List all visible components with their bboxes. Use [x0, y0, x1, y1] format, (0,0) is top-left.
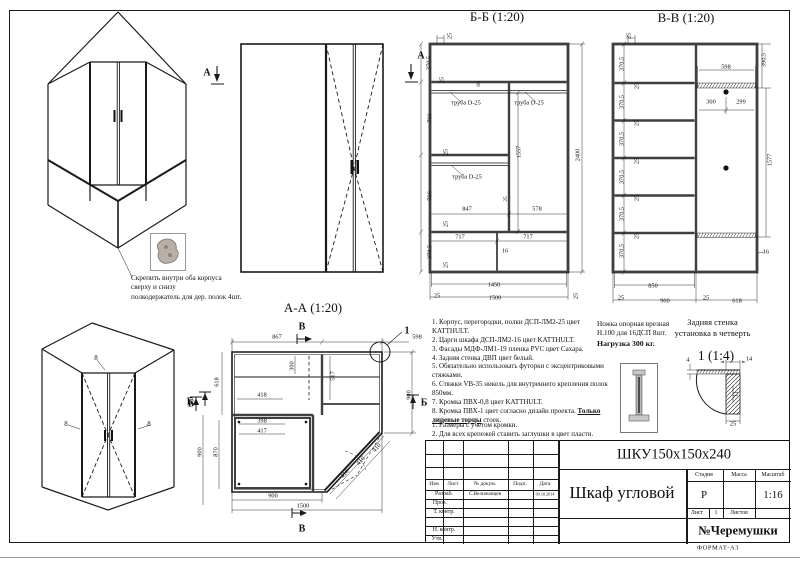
section-marker-b-right: Б	[421, 398, 428, 409]
dim: 60	[476, 81, 482, 86]
dim: 870	[213, 447, 220, 456]
dim: 717	[455, 234, 464, 241]
dim: 25	[443, 262, 450, 268]
dim: 370.5	[619, 57, 626, 71]
dim: 16	[763, 249, 769, 256]
tb-sheets-label: Листов	[730, 510, 748, 516]
tb-row-tkontr: Т. контр.	[433, 509, 454, 515]
project-number: №Черемушки	[698, 524, 778, 539]
tb-row-razrab: Разраб.	[435, 491, 453, 497]
plan-aa-view	[195, 312, 445, 537]
tb-col-list: Лист	[447, 481, 459, 487]
dim: 25	[447, 33, 454, 39]
section-marker-v-bottom: В	[299, 524, 306, 535]
section-marker-b-left: Б	[187, 397, 194, 408]
dim: 900	[268, 493, 277, 500]
tb-mass-label: Масса	[731, 472, 747, 478]
dim: 25	[634, 120, 641, 126]
dim: 517	[330, 371, 337, 380]
drawing-name: Шкаф угловой	[569, 483, 674, 503]
dim: 25	[439, 77, 446, 83]
notes-extra-list: 1. Размеры с учетом кромки. 2. Для всех …	[432, 421, 612, 439]
section-bb-title: Б-Б (1:20)	[470, 9, 524, 25]
section-bb-view	[415, 25, 595, 315]
note-item: 3. Фасады МДФ-ЛМ1-19 пленка PVC цвет Сах…	[432, 345, 612, 354]
dim: 1577	[767, 154, 774, 167]
dim: 25	[573, 293, 580, 299]
tb-col-data: Дата	[540, 481, 551, 487]
dim: 370.5	[427, 245, 434, 259]
drawing-code: ШКУ150х150х240	[617, 447, 731, 464]
tb-stage-label: Стадия	[695, 472, 713, 478]
dim: 766	[427, 113, 434, 122]
tb-row-nkontr: Н. контр.	[433, 527, 456, 533]
dim: 25	[634, 195, 641, 201]
dim: 417	[257, 428, 266, 435]
dim: 25	[634, 83, 641, 89]
dim: 2400	[575, 149, 582, 162]
edge-mark-left: 8	[64, 420, 68, 428]
section-vv-title: В-В (1:20)	[658, 10, 715, 26]
dim: 370.5	[619, 170, 626, 184]
tb-col-podp: Подп.	[513, 481, 527, 487]
dim: 1557	[516, 146, 523, 159]
note-extra-item: 2. Для всех крепежей ставить заглушки в …	[432, 430, 612, 439]
leg-image	[621, 364, 657, 432]
back-line2: установка в четверть	[655, 328, 770, 339]
note-item: 7. Кромка ПВХ-0,8 цвет KATTHULT.	[432, 398, 612, 407]
edge-mark-top: 8	[94, 354, 98, 362]
fasten-line3: полкодержатель для дер. полок 4шт.	[131, 293, 242, 302]
note-item: 2. Царги шкафа ДСП-ЛМ2-16 цвет KATTHULT.	[432, 336, 612, 345]
dim: 598	[721, 64, 730, 71]
note-item: 1. Корпус, перегородки, полки ДСП-ЛМ2-25…	[432, 318, 612, 336]
dim: 418	[257, 392, 266, 399]
dim: 900	[197, 447, 204, 456]
tb-developer: С.Велижанцев	[469, 491, 501, 497]
dim: 300	[706, 99, 715, 106]
note8-text: 8. Кромка ПВХ-1 цвет согласно дизайн про…	[432, 407, 577, 415]
tube-label: труба D-25	[452, 174, 481, 181]
dim: 850	[648, 283, 657, 290]
dim: 370.5	[426, 56, 433, 70]
dim: 25	[443, 149, 450, 155]
dim: 847	[462, 206, 471, 213]
tb-stage-value: Р	[701, 489, 707, 501]
dim: 25	[634, 233, 641, 239]
dim: 1500	[297, 503, 310, 510]
dim: 11	[733, 391, 740, 397]
dim: 14	[746, 356, 752, 363]
tb-scale-label: Масштаб	[762, 472, 785, 478]
back-panel-annotation: Задняя стенка установка в четверть	[655, 317, 770, 339]
dim: 300	[289, 361, 296, 370]
tb-sheet-no: 1	[715, 510, 718, 516]
section-marker-a-left: А	[203, 68, 210, 79]
detail-callout-label: 1	[405, 326, 410, 337]
dim: 370.5	[619, 132, 626, 146]
dim: 25	[626, 33, 633, 39]
dim: 25	[634, 158, 641, 164]
tb-sheet-label: Лист	[691, 510, 703, 516]
iso-view-bottom	[20, 318, 215, 528]
note-item: 5. Обязательно использовать футорки с эк…	[432, 362, 612, 380]
dim: 618	[732, 298, 741, 305]
tb-col-izm: Изм	[429, 481, 439, 487]
dim: 4	[686, 357, 689, 364]
dim: 1500	[489, 295, 502, 302]
dim: 867	[272, 334, 281, 341]
dim: 25	[434, 293, 440, 300]
section-marker-v-top: В	[299, 322, 306, 333]
door-handle-left	[114, 110, 116, 122]
dim: 398	[257, 418, 266, 425]
notes-list: 1. Корпус, перегородки, полки ДСП-ЛМ2-25…	[432, 318, 612, 425]
dim: 766	[427, 191, 434, 200]
leg-image-box	[620, 363, 658, 433]
tb-row-prov: Пров.	[433, 500, 447, 506]
dim: 16	[502, 248, 508, 255]
dim: 598	[412, 334, 421, 341]
dim: 25	[703, 295, 709, 302]
tube-label: труба D-25	[451, 100, 480, 107]
dim: 25	[618, 295, 624, 302]
edge-mark-right: 8	[147, 420, 151, 428]
sheet-bottom-edge	[0, 557, 800, 558]
back-line1: Задняя стенка	[655, 317, 770, 328]
front-view	[180, 38, 415, 288]
note-extra-item: 1. Размеры с учетом кромки.	[432, 421, 612, 430]
dim: 900	[406, 390, 413, 399]
dim: 900	[660, 298, 669, 305]
title-block: Изм Лист № докум. Подп. Дата Разраб. С.В…	[425, 440, 790, 543]
leg-load: Нагрузка 300 кг.	[597, 339, 669, 349]
dim: 25	[503, 196, 509, 201]
format-label: ФОРМАТ-А3	[697, 545, 739, 552]
dim: 390.5	[761, 53, 768, 67]
dim: 370.5	[619, 95, 626, 109]
door-handle-right	[121, 110, 123, 122]
note-item: 4. Задняя стенка ДВП цвет белый.	[432, 354, 612, 363]
dim: 578	[532, 206, 541, 213]
dim: 370.5	[619, 244, 626, 258]
dim: 618	[214, 377, 221, 386]
dim: 717	[523, 234, 532, 241]
dim: 25	[443, 221, 450, 227]
dim: 1450	[488, 282, 501, 289]
note-item: 6. Стяжки VB-35 никель для внутреннего к…	[432, 380, 612, 398]
tb-col-ndoc: № докум.	[474, 481, 496, 487]
tb-date: 09.10.2014	[536, 492, 555, 497]
section-vv-view	[600, 25, 800, 315]
tube-label: труба D-25	[514, 100, 543, 107]
tb-row-utv: Утв.	[432, 536, 443, 542]
dim: 370.5	[619, 207, 626, 221]
drawing-sheet: Скрепить внутри оба корпуса сверху и сни…	[0, 0, 800, 565]
tb-scale-value: 1:16	[763, 489, 783, 501]
dim: 25	[730, 421, 736, 428]
dim: 299	[736, 99, 745, 106]
